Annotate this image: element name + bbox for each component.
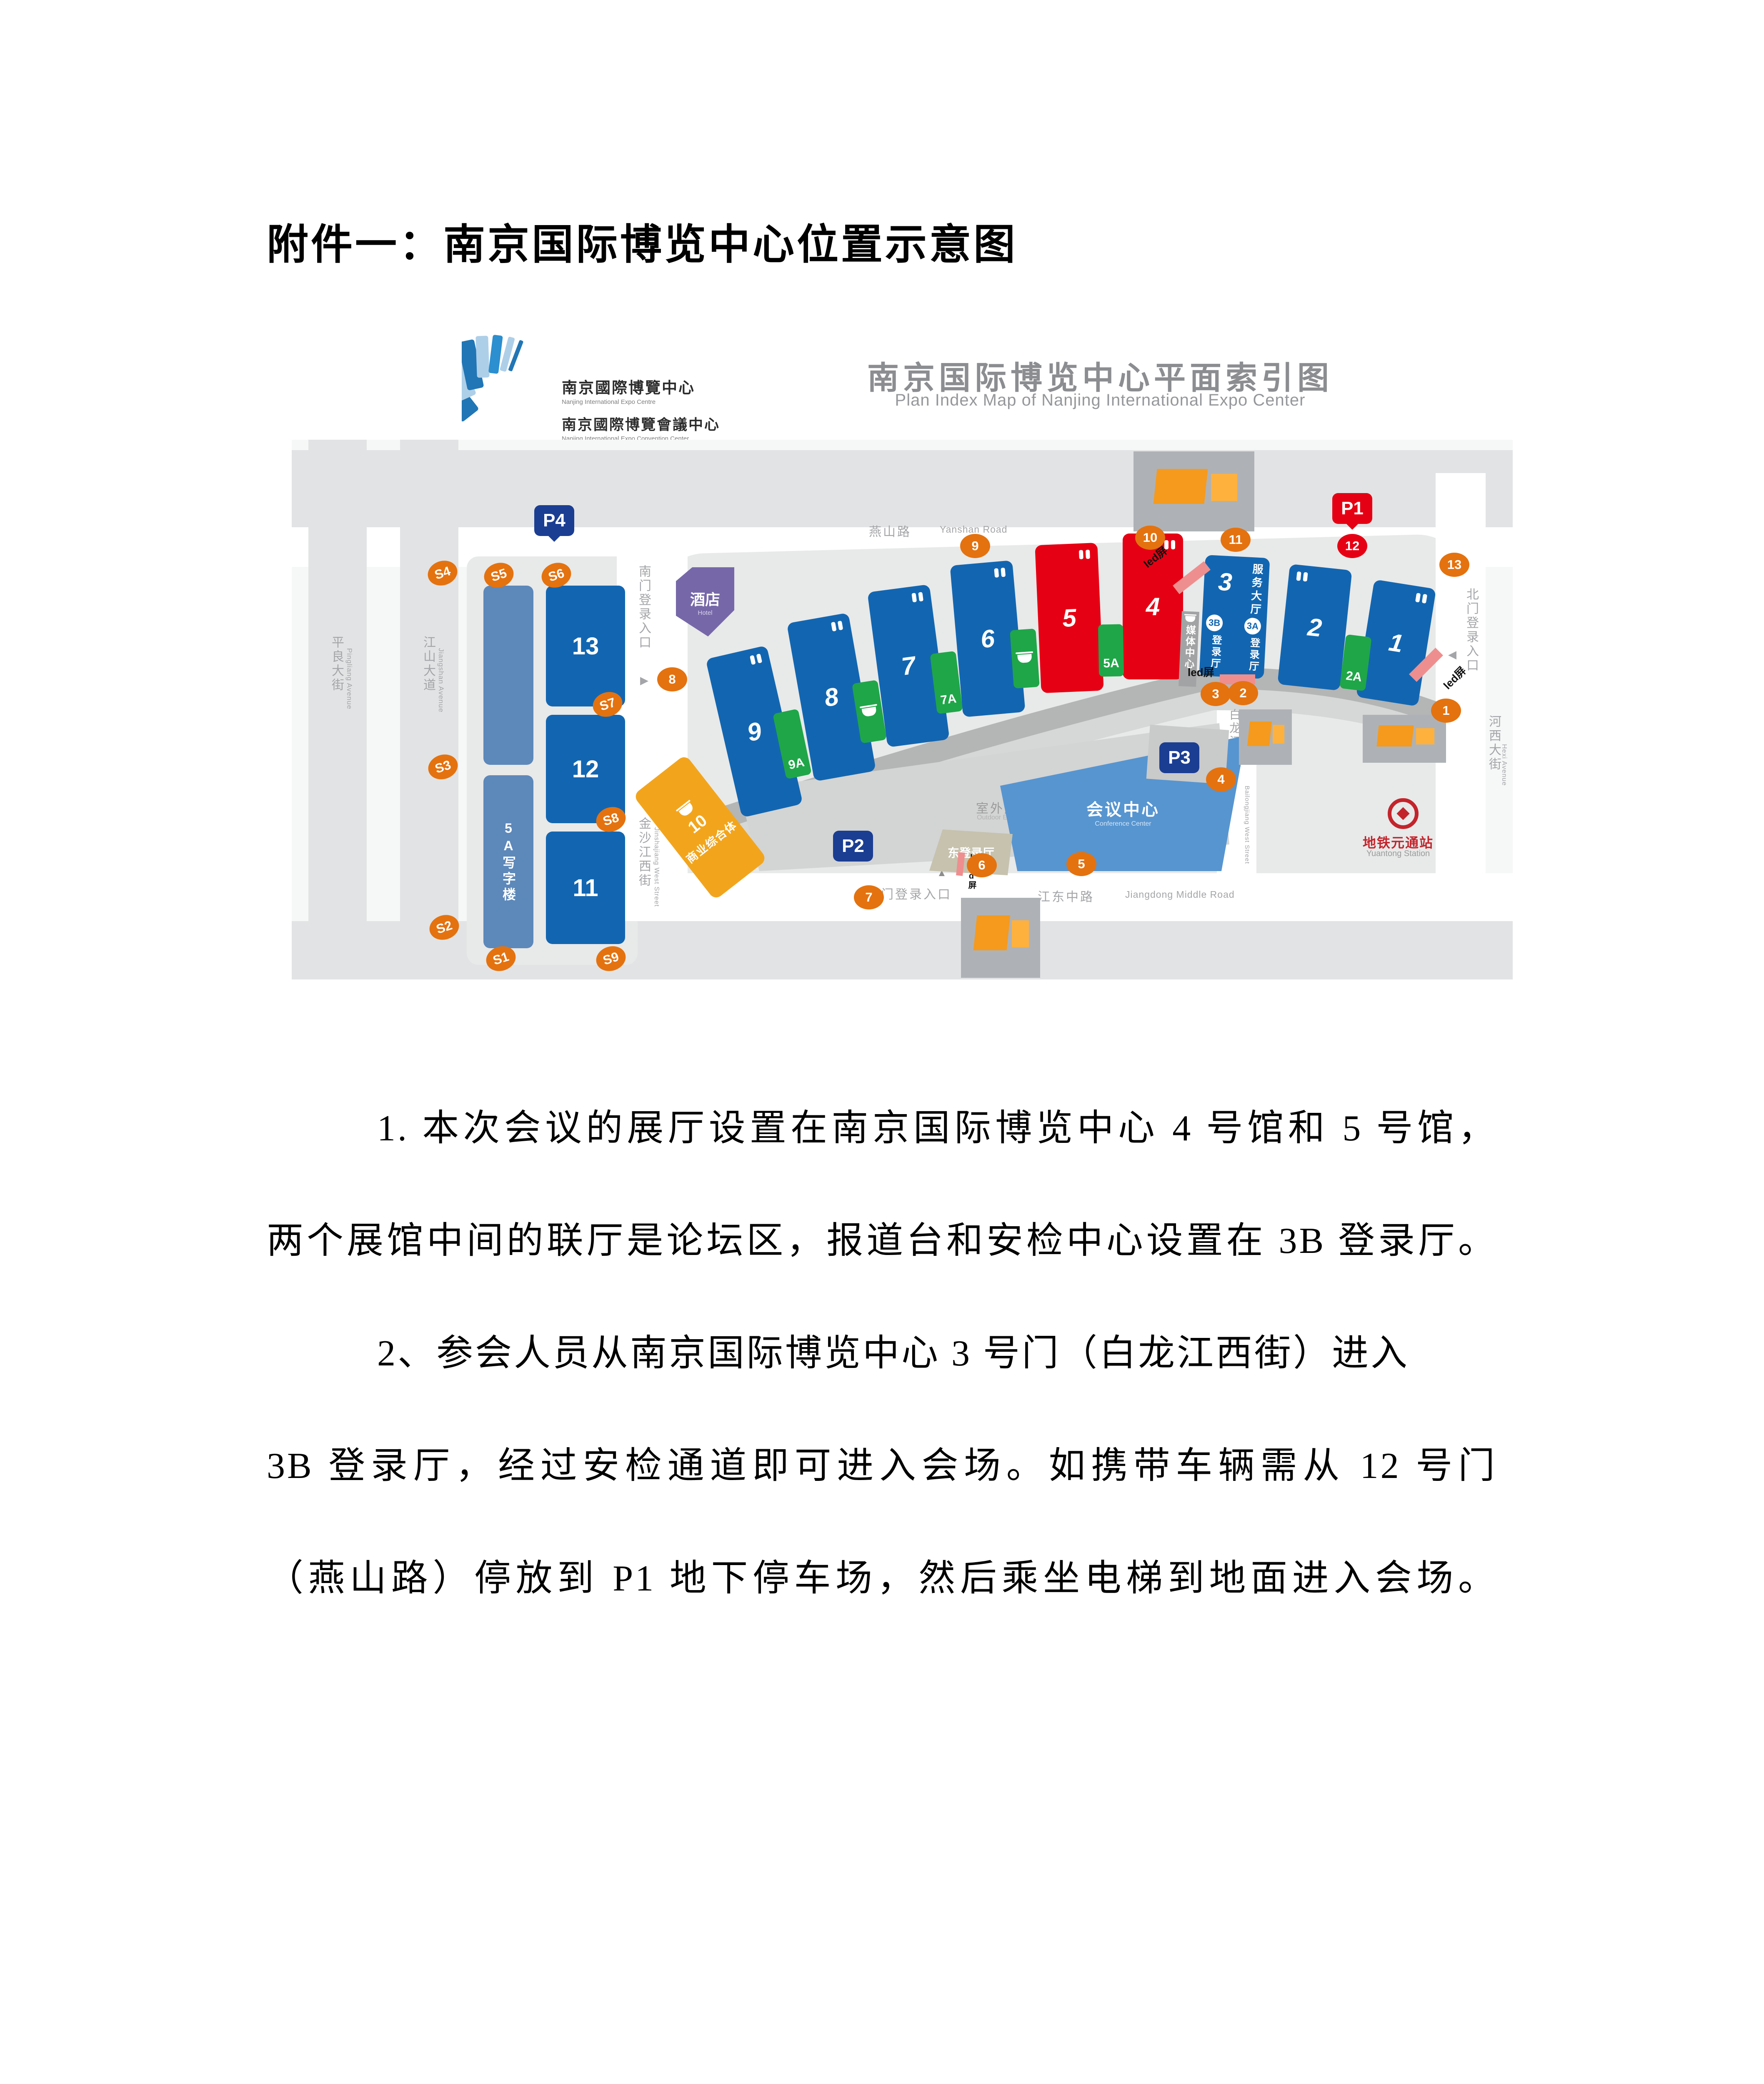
page-title: 附件一：南京国际博览中心位置示意图 (267, 210, 1500, 271)
gate-6: 6 (967, 853, 997, 877)
expo-building-photo-east (1363, 715, 1446, 763)
hall-4-label: 4 (1146, 592, 1160, 621)
paragraph-1-line-2: 两个展馆中间的联厅是论坛区，报道台和安检中心设置在 3B 登录厅。 (267, 1217, 1497, 1265)
jiangdong-road-label-cn: 江东中路 (1038, 887, 1094, 905)
jiangdong-road-label-en: Jiangdong Middle Road (1125, 889, 1235, 900)
parking-p4-marker: P4 (534, 505, 574, 536)
hall-13: 13 (546, 586, 625, 706)
gate-12: 12 (1337, 534, 1367, 558)
hall-5a-label: 5A (1103, 656, 1119, 671)
hall-11-label: 11 (573, 874, 598, 902)
hall-9-label: 9 (744, 716, 764, 747)
hall-2a-label: 2A (1345, 669, 1363, 685)
office-tower-5a: 5A写字楼 (483, 775, 533, 948)
gate-10: 10 (1135, 526, 1165, 550)
hall-9a-label: 9A (787, 755, 806, 772)
jinshajiang-road-label-cn: 金沙江西街 (634, 817, 653, 888)
restroom-icon (992, 566, 1008, 579)
cafe-icon (678, 803, 695, 818)
hall-5: 5 (1035, 543, 1103, 693)
cafe-block-2 (1010, 629, 1040, 689)
gate-11: 11 (1221, 528, 1251, 552)
gate-9: 9 (960, 534, 990, 558)
cafe-icon (862, 706, 877, 717)
north-gate-label: 北门登录入口 (1462, 588, 1480, 673)
gate-2: 2 (1228, 681, 1258, 705)
gate-1: 1 (1431, 699, 1461, 723)
conference-center-label-cn: 会议中心 (1086, 796, 1160, 820)
south-gate-arrow-icon: ▶ (640, 674, 650, 687)
gate-3b-badge: 3B (1206, 614, 1223, 631)
expo-map-canvas: 室外展场 Outdoor Exhibition 燕山路 Yanshan Road… (292, 440, 1513, 979)
expo-logo-text: 南京國際博覽中心 Nanjing International Expo Cent… (562, 375, 820, 442)
tower-building (483, 586, 533, 765)
hall-8-label: 8 (822, 682, 841, 713)
bailongjiang-road-label-en: Bailongjiang West Street (1244, 786, 1251, 864)
paragraph-2-line-1: 2、参会人员从南京国际博览中心 3 号门（白龙江西街）进入 (267, 1330, 1497, 1378)
paragraph-1-line-1: 1. 本次会议的展厅设置在南京国际博览中心 4 号馆和 5 号馆， (267, 1105, 1497, 1153)
gate-8: 8 (657, 667, 687, 691)
parking-p1-marker: P1 (1332, 493, 1372, 524)
expo-logo-icon (462, 333, 570, 447)
hall-5-label: 5 (1062, 603, 1077, 632)
hall-3-service-hall: 3 服务大厅 3B 登录厅 3A 登录厅 (1199, 555, 1270, 679)
service-hall-label: 服务大厅 (1247, 563, 1266, 617)
restroom-icon (1294, 570, 1310, 583)
paragraph-2-line-3: （燕山路）停放到 P1 地下停车场，然后乘坐电梯到地面进入会场。 (267, 1555, 1497, 1603)
gate-13: 13 (1439, 553, 1469, 577)
office-tower-5a-label: 5A写字楼 (499, 821, 518, 903)
metro-logo-icon (1388, 798, 1419, 829)
gate-5: 5 (1066, 852, 1096, 876)
hall-11: 11 (546, 832, 625, 944)
restroom-icon (1413, 591, 1430, 604)
jiangshan-road-label-en: Jiangshan Avenue (437, 648, 445, 713)
document-page: 附件一：南京国际博览中心位置示意图 南京國際博覽中心 Nanjing Inter… (0, 0, 1764, 2084)
jinshajiang-road-label-en: Jinshajiang West Street (653, 827, 660, 907)
paragraph-2-line-2: 3B 登录厅，经过安检通道即可进入会场。如携带车辆需从 12 号门 (267, 1442, 1497, 1490)
hall-7-label: 7 (900, 651, 917, 681)
cafe-icon (1185, 616, 1195, 622)
restroom-icon (909, 591, 926, 604)
hall-2: 2 (1277, 564, 1352, 691)
pingliang-road-label-en: Pingliang Avenue (345, 648, 353, 709)
hall-7a-label: 7A (940, 691, 957, 707)
expo-building-photo-gate3 (1239, 709, 1292, 765)
led-screen-hall3-label: led屏 (1188, 664, 1214, 679)
hall-13-label: 13 (572, 632, 599, 660)
login-hall-3a-label: 登录厅 (1245, 637, 1261, 673)
gate-3a-badge: 3A (1244, 617, 1261, 635)
gate-7: 7 (854, 885, 884, 909)
logo-name-cn-2: 南京國際博覽會議中心 (562, 413, 820, 434)
north-gate-arrow-icon: ◀ (1448, 648, 1458, 661)
restroom-icon (829, 619, 846, 633)
gate-4: 4 (1206, 767, 1236, 792)
hall-6-label: 6 (979, 624, 996, 654)
hall-5a: 5A (1098, 624, 1124, 676)
hotel-label-en: Hotel (698, 609, 712, 616)
expo-building-photo-north (1133, 451, 1254, 531)
metro-station-label-en: Yuantong Station (1346, 849, 1450, 859)
hall-2-label: 2 (1306, 612, 1323, 642)
restroom-icon (1077, 549, 1092, 560)
map-title-en: Plan Index Map of Nanjing International … (817, 391, 1384, 410)
commercial-complex-number: 10 (685, 811, 711, 837)
pingliang-road-label-cn: 平良大街 (327, 636, 345, 692)
jiangshan-road-label-cn: 江山大道 (419, 636, 437, 692)
gate-3: 3 (1201, 682, 1231, 706)
hotel-label-cn: 酒店 (690, 588, 720, 609)
logo-name-cn-1: 南京國際博覽中心 (562, 375, 820, 398)
restroom-icon (748, 652, 765, 666)
media-center-label: 媒体中心 (1181, 624, 1197, 670)
yanshan-road-label-cn: 燕山路 (869, 521, 911, 540)
hall-1-label: 1 (1387, 628, 1405, 658)
yanshan-road-label-en: Yanshan Road (940, 524, 1007, 535)
logo-name-en-1: Nanjing International Expo Centre (562, 398, 820, 406)
conference-center-label-en: Conference Center (1095, 820, 1151, 828)
hexi-road-label-en: Hexi Avenue (1500, 744, 1508, 786)
south-gate-label: 南门登录入口 (634, 565, 653, 650)
parking-p3-marker: P3 (1159, 742, 1199, 773)
parking-p2-marker: P2 (833, 831, 873, 862)
hall-12-label: 12 (572, 755, 599, 783)
cafe-icon (1017, 654, 1032, 663)
expo-building-photo-south (961, 898, 1040, 978)
hall-3-label: 3 (1218, 567, 1233, 597)
